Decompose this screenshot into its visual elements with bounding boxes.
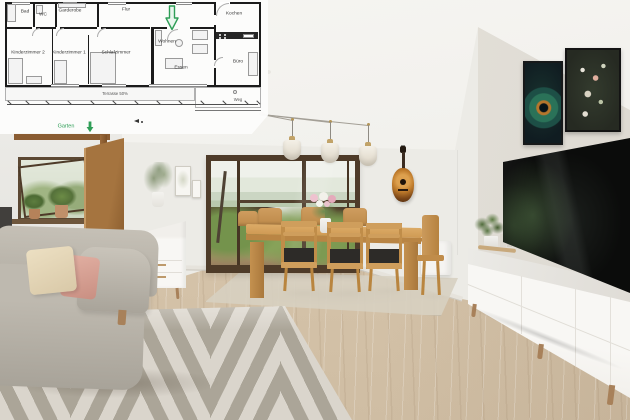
chair-seat-pad	[284, 248, 314, 262]
table-leg-panel	[404, 242, 418, 290]
chair-leg	[310, 268, 315, 291]
blossom	[316, 200, 323, 207]
botanical-frame	[565, 48, 621, 132]
plan-room-label-wc: WC	[39, 14, 47, 19]
plan-wall	[60, 27, 97, 29]
plan-dimension-line	[195, 110, 261, 111]
vase	[152, 192, 164, 207]
plan-wall	[101, 27, 150, 29]
chair-leg	[283, 268, 288, 291]
plan-wall	[190, 27, 214, 29]
plan-bed	[8, 58, 23, 84]
plan-stove-burner	[219, 34, 221, 36]
dining-chair-end	[417, 215, 445, 297]
plan-dimension-line	[7, 104, 258, 105]
chair-leg	[436, 261, 441, 295]
sideboard-seam	[610, 297, 611, 386]
sofa-leg	[117, 310, 126, 326]
chair-leg	[329, 269, 334, 292]
eucalyptus-vase	[134, 160, 190, 212]
plan-room-label-flur: Flur	[122, 9, 130, 14]
door-lintel	[14, 133, 110, 140]
pendant-lamp	[283, 140, 301, 160]
chair-stile	[314, 221, 318, 268]
dining-chair	[327, 222, 363, 292]
chair-rail	[368, 234, 400, 238]
plan-path-label: Weg	[234, 98, 243, 102]
chair-leg	[368, 269, 373, 291]
plan-room-label-wohnen: Wohnen	[158, 41, 176, 46]
chair-leg	[356, 269, 361, 292]
plan-stove-burner	[224, 37, 226, 39]
plan-room-label-kinderzimmer2: Kinderzimmer 2	[11, 52, 45, 57]
plan-room-label-bad: Bad	[21, 11, 30, 16]
plan-room-label-schlafzimmer: Schlafzimmer	[101, 52, 130, 57]
plan-wall	[214, 68, 217, 87]
wall-frame-tiny	[192, 180, 201, 198]
chair-rail	[329, 233, 361, 237]
chair-back	[422, 215, 439, 257]
peacock-frame	[523, 61, 563, 145]
compass-dot	[141, 121, 143, 123]
plan-coffee-table	[175, 39, 183, 47]
plan-stove-burner	[224, 34, 226, 36]
compass-mark	[134, 119, 139, 123]
plan-room-label-garderobe: Garderobe	[59, 10, 82, 15]
garden-arrow-icon	[86, 121, 94, 133]
acoustic-guitar	[390, 145, 416, 207]
potted-plant-pot	[29, 209, 40, 219]
plan-desk	[248, 52, 258, 76]
table-leg-panel	[250, 242, 264, 298]
sideboard-leg	[607, 385, 615, 406]
chair-seat-pad	[330, 249, 360, 263]
guitar-body	[392, 168, 414, 202]
dining-chair	[281, 221, 317, 291]
sideboard-leg	[537, 344, 544, 359]
dining-chair	[366, 223, 402, 291]
plan-wall	[55, 2, 57, 27]
plan-wall	[151, 27, 154, 84]
blossom	[324, 201, 330, 207]
plan-wall	[5, 27, 32, 29]
plan-bed	[90, 52, 116, 84]
plan-sofa-symbol	[192, 44, 208, 54]
plan-room-label-buero: Büro	[233, 61, 243, 66]
dining-chair-far	[258, 208, 282, 225]
plan-wardrobe	[26, 76, 42, 84]
cushion-cream	[26, 246, 77, 296]
plan-wall	[97, 2, 99, 27]
chair-rail	[366, 223, 402, 229]
pendant-lamp	[359, 146, 377, 166]
chair-seat-pad	[369, 249, 399, 263]
potted-plant-pot	[55, 205, 68, 218]
potted-plant-leaves	[22, 193, 46, 210]
guitar-bridge	[398, 189, 408, 191]
guitar-soundhole	[400, 179, 406, 185]
plan-room-label-kinderzimmer1: Kinderzimmer 1	[52, 52, 86, 57]
pendant-lamp	[321, 143, 339, 163]
plan-room-label-essen: Essen	[174, 67, 187, 72]
plan-bathtub	[7, 4, 16, 22]
room-highlight-arrow-icon	[165, 5, 179, 31]
plan-window	[108, 2, 126, 5]
chair-rail	[281, 221, 317, 227]
chair-rail	[327, 222, 363, 228]
plan-room-label-kochen: Kochen	[226, 13, 242, 18]
plan-sofa-symbol	[192, 30, 208, 40]
plan-terrace-label: Terrasse 50%	[102, 91, 128, 95]
plan-terrace	[5, 87, 195, 101]
plan-wardrobe	[58, 3, 86, 8]
chair-rail	[283, 232, 315, 236]
chair-leg	[395, 269, 400, 291]
plan-wall	[214, 25, 217, 60]
plan-bed	[54, 60, 67, 84]
floorplan-overlay: Bad WC Garderobe Flur Kochen Kinderzimme…	[0, 0, 268, 134]
plan-path	[195, 87, 261, 108]
plan-wall	[33, 2, 35, 27]
living-room-photo: Bad WC Garderobe Flur Kochen Kinderzimme…	[0, 0, 630, 420]
chair-leg	[421, 261, 426, 295]
chair-seat	[417, 255, 444, 261]
plan-stove-burner	[219, 37, 221, 39]
plan-garden-label: Garten	[58, 124, 75, 130]
chair-stile	[360, 222, 364, 269]
plan-sink	[243, 34, 254, 38]
plan-path-circle	[233, 90, 237, 94]
